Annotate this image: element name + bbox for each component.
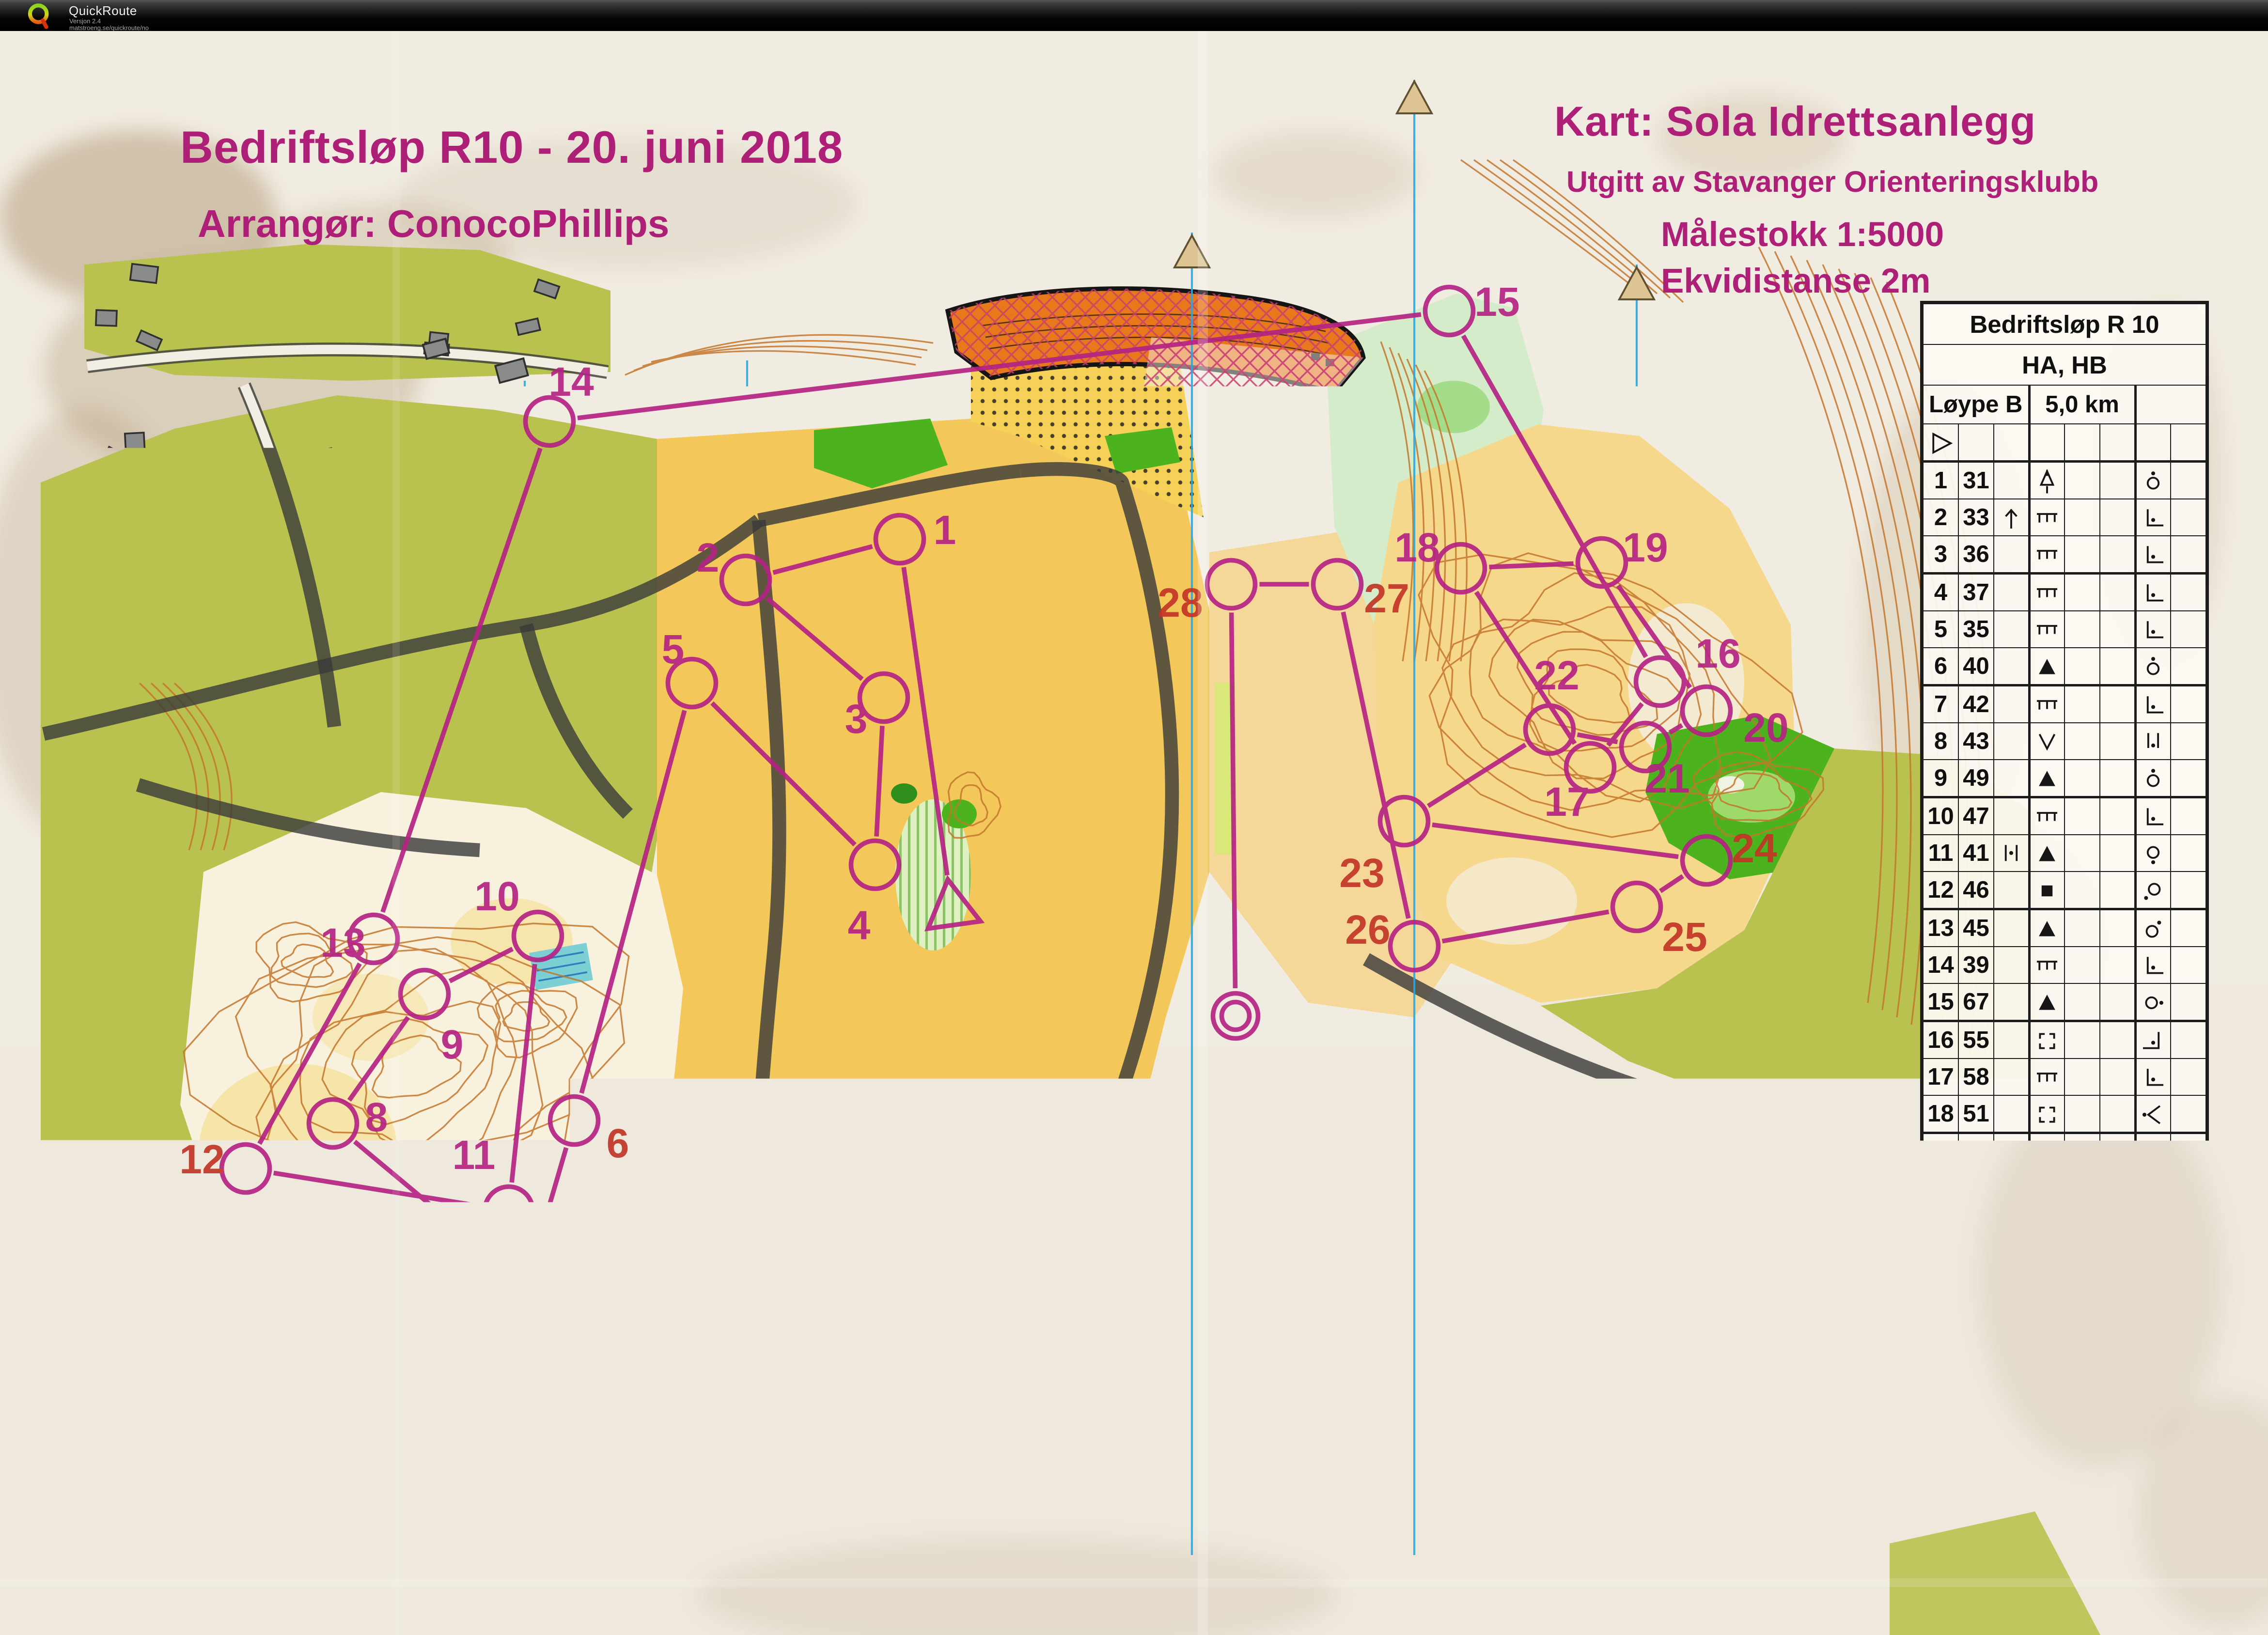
control-row-5: 535 [1923, 611, 2206, 648]
wall-icon [2034, 1437, 2060, 1464]
control-number-label: 7 [541, 1309, 564, 1355]
control-code: 43 [1958, 723, 1994, 760]
control-number: 24 [1923, 1319, 1958, 1357]
control-row-18: 1851 [1923, 1095, 2206, 1133]
corner-sw-dot-icon [2140, 1401, 2166, 1427]
event-title: Bedriftsløp R10 - 20. juni 2018 [180, 121, 843, 173]
control-description-card: Bedriftsløp R 10 HA, HB Løype B 5,0 km 1… [1920, 301, 2209, 1551]
control-row-4: 437 [1923, 574, 2206, 611]
control-row-7: 742 [1923, 685, 2206, 723]
boulder-icon [2034, 841, 2060, 867]
control-code: 56 [1958, 1170, 1994, 1207]
control-row-27: 2763 [1923, 1431, 2206, 1469]
ruin-icon [2034, 1177, 2060, 1203]
control-code: 63 [1958, 1431, 1994, 1469]
circle-dot-top-icon [2140, 654, 2166, 680]
fence-icon [2034, 617, 2060, 643]
control-code: 57 [1958, 1207, 1994, 1245]
control-code: 45 [1958, 909, 1994, 947]
circle-dot-top-icon [2140, 468, 2166, 495]
control-number-label: 27 [1364, 576, 1409, 621]
control-number: 9 [1923, 760, 1958, 797]
circle-dot-bottom-icon [2140, 841, 2166, 867]
control-code: 42 [1958, 685, 1994, 723]
ruin-icon [2034, 1102, 2060, 1128]
control-code: 58 [1958, 1059, 1994, 1095]
control-row-28: 2869 [1923, 1469, 2206, 1507]
control-number-label: 13 [320, 920, 365, 965]
control-number-label: 21 [1644, 756, 1689, 801]
card-title: Bedriftsløp R 10 [1923, 304, 2206, 344]
fence-icon [2034, 542, 2060, 568]
corner-nw-dot-icon [2140, 1214, 2166, 1240]
fence-icon [2034, 804, 2060, 830]
control-number-label: 16 [1695, 631, 1740, 676]
circle-dot-top-icon [2140, 766, 2166, 792]
last-leg-taped-icon [1930, 1515, 1956, 1541]
control-number-label: 18 [1394, 525, 1439, 570]
control-number: 4 [1923, 574, 1958, 611]
ruin-icon [2034, 1214, 2060, 1240]
app-version: Versjon 2.4 [69, 17, 101, 25]
control-number-label: 3 [845, 696, 868, 742]
control-number: 10 [1923, 797, 1958, 835]
app-title: QuickRoute [69, 3, 137, 18]
control-code: 33 [1958, 499, 1994, 536]
control-row-3: 336 [1923, 536, 2206, 574]
card-course-length: 5,0 km [2029, 385, 2135, 424]
control-code: 51 [1958, 1095, 1994, 1133]
map-contour-label: Ekvidistanse 2m [1661, 262, 1930, 301]
control-number-label: 15 [1474, 279, 1519, 325]
control-row-11: 1141 [1923, 835, 2206, 872]
control-code: 49 [1958, 760, 1994, 797]
fence-icon [2034, 1401, 2060, 1427]
control-code: 40 [1958, 648, 1994, 685]
control-number-label: 5 [662, 626, 685, 672]
control-row-15: 1567 [1923, 983, 2206, 1021]
control-number-label: 24 [1732, 825, 1777, 871]
corner-sw-dot-icon [2140, 953, 2166, 979]
boulder-icon [2034, 1364, 2060, 1390]
circle-dot-top-icon [2140, 1140, 2166, 1166]
control-code: 62 [1958, 1282, 1994, 1319]
control-row-14: 1439 [1923, 947, 2206, 983]
boulder-icon [2034, 1325, 2060, 1352]
finish-circles-icon [2173, 1515, 2199, 1541]
control-row-1: 131 [1923, 462, 2206, 499]
control-code: 41 [1958, 835, 1994, 872]
control-number: 11 [1923, 835, 1958, 872]
control-description-table: Bedriftsløp R 10 HA, HB Løype B 5,0 km 1… [1923, 303, 2206, 1548]
finish-distance: 210 m [1956, 1513, 2173, 1541]
control-code: 46 [1958, 872, 1994, 909]
control-number: 1 [1923, 462, 1958, 499]
fence-icon [2034, 953, 2060, 979]
corner-sw-dot-icon [2140, 1065, 2166, 1091]
control-number-label: 19 [1623, 525, 1668, 570]
control-number: 16 [1923, 1021, 1958, 1059]
circle-dot-topright-icon [2140, 916, 2166, 942]
control-row-13: 1345 [1923, 909, 2206, 947]
control-number-label: 20 [1743, 705, 1788, 750]
control-number: 12 [1923, 872, 1958, 909]
boulder-icon [2034, 654, 2060, 680]
corner-sw-dot-icon [2140, 617, 2166, 643]
control-code: 54 [1958, 1245, 1994, 1283]
fence-icon [2034, 580, 2060, 607]
control-code: 35 [1958, 611, 1994, 648]
titlebar: QuickRoute Versjon 2.4 matstroeng.se/qui… [0, 0, 2268, 31]
card-course-extra [2135, 385, 2206, 424]
circle-dot-bottomleft-icon [2140, 878, 2166, 904]
control-row-12: 1246 [1923, 872, 2206, 909]
fence-icon [2034, 1065, 2060, 1091]
control-row-2: 233 [1923, 499, 2206, 536]
card-classes: HA, HB [1923, 344, 2206, 385]
control-number: 14 [1923, 947, 1958, 983]
control-number: 8 [1923, 723, 1958, 760]
control-code: 31 [1958, 462, 1994, 499]
boulder-icon [2034, 990, 2060, 1016]
vee-right-dot-icon [2140, 1102, 2166, 1128]
building-icon [2034, 878, 2060, 904]
circle-dot-topright-icon [2140, 1325, 2166, 1352]
control-number-label: 23 [1339, 850, 1384, 896]
control-row-9: 949 [1923, 760, 2206, 797]
corner-sw-dot-icon [2140, 542, 2166, 568]
boulder-icon [2034, 1140, 2060, 1166]
control-number-label: 25 [1662, 914, 1707, 960]
boulder-icon [2034, 766, 2060, 792]
circle-dot-right-icon [2140, 990, 2166, 1016]
control-number-label: 2 [697, 535, 720, 580]
between-bars-dot-icon [2140, 729, 2166, 755]
control-number: 13 [1923, 909, 1958, 947]
corner-sw-dot-icon [2140, 804, 2166, 830]
taped-route-icon [1930, 1513, 1956, 1541]
tree-icon [2034, 468, 2060, 495]
fence-icon [2034, 692, 2060, 718]
fence-icon [2034, 505, 2060, 531]
control-row-6: 640 [1923, 648, 2206, 685]
control-row-10: 1047 [1923, 797, 2206, 835]
control-number-label: 10 [474, 873, 519, 919]
control-number: 6 [1923, 648, 1958, 685]
control-row-8: 843 [1923, 723, 2206, 760]
event-organizer: Arrangør: ConocoPhillips [198, 202, 669, 246]
app-url: matstroeng.se/quickroute/no [69, 24, 149, 31]
control-row-17: 1758 [1923, 1059, 2206, 1095]
control-number-label: 17 [1544, 779, 1589, 825]
card-start-row [1923, 424, 2206, 462]
control-number: 25 [1923, 1357, 1958, 1395]
corner-ne-dot-icon [2140, 1177, 2166, 1203]
control-number-label: 11 [453, 1132, 496, 1178]
between-boulders-icon [1998, 841, 2024, 867]
control-row-19: 1952 [1923, 1133, 2206, 1171]
control-row-25: 2560 [1923, 1357, 2206, 1395]
control-number-label: 26 [1345, 907, 1390, 952]
control-code: 37 [1958, 574, 1994, 611]
control-number: 2 [1923, 499, 1958, 536]
map-scale-label: Målestokk 1:5000 [1661, 215, 1944, 254]
map-name-label: Kart: Sola Idrettsanlegg [1554, 98, 2036, 146]
control-code: 36 [1958, 536, 1994, 574]
control-number: 27 [1923, 1431, 1958, 1469]
cross-icon [2034, 1476, 2060, 1502]
circle-dot-left-icon [2140, 1476, 2166, 1502]
corner-se-dot-icon [2140, 1028, 2166, 1054]
finish-icon [2173, 1513, 2199, 1541]
control-number: 21 [1923, 1207, 1958, 1245]
quickroute-logo-icon [25, 2, 53, 30]
control-number-label: 14 [548, 359, 594, 405]
control-row-20: 2056 [1923, 1170, 2206, 1207]
control-row-21: 2157 [1923, 1207, 2206, 1245]
control-row-16: 1655 [1923, 1021, 2206, 1059]
circle-dot-topright-icon [2140, 1252, 2166, 1278]
boulder-icon [2034, 916, 2060, 942]
control-number: 15 [1923, 983, 1958, 1021]
control-code: 55 [1958, 1021, 1994, 1059]
control-number: 28 [1923, 1469, 1958, 1507]
control-code: 47 [1958, 797, 1994, 835]
corner-ne-dot-icon [2140, 1437, 2166, 1464]
circle-dot-bottom-icon [2140, 1364, 2166, 1390]
control-number-label: 8 [365, 1094, 388, 1140]
control-row-22: 2254 [1923, 1245, 2206, 1283]
corner-sw-dot-icon [2140, 692, 2166, 718]
control-number: 20 [1923, 1170, 1958, 1207]
card-course-name: Løype B [1923, 385, 2029, 424]
control-number-label: 4 [848, 903, 871, 948]
control-number: 17 [1923, 1059, 1958, 1095]
map-publisher-label: Utgitt av Stavanger Orienteringsklubb [1566, 165, 2098, 199]
control-code: 59 [1958, 1319, 1994, 1357]
control-number: 18 [1923, 1095, 1958, 1133]
corner-sw-dot-icon [2140, 505, 2166, 531]
corner-sw-dot-icon [2140, 580, 2166, 607]
boulder-icon [2034, 1252, 2060, 1278]
arrow-up-icon [1998, 505, 2024, 531]
control-number: 19 [1923, 1133, 1958, 1171]
control-number: 26 [1923, 1394, 1958, 1431]
screenshot-root: 1234567891011121314151617181920212223242… [0, 0, 2268, 1635]
control-number-label: 9 [441, 1022, 464, 1067]
control-code: 52 [1958, 1133, 1994, 1171]
start-triangle-icon [1928, 430, 1954, 456]
roundabout [1342, 1254, 1385, 1298]
control-number: 3 [1923, 536, 1958, 574]
control-code: 67 [1958, 983, 1994, 1021]
control-number-label: 12 [179, 1137, 224, 1182]
control-number: 22 [1923, 1245, 1958, 1283]
control-number-label: 22 [1534, 653, 1579, 698]
control-code: 61 [1958, 1394, 1994, 1431]
control-number-label: 28 [1157, 580, 1203, 625]
vee-icon [2034, 729, 2060, 755]
boulder-icon [2034, 1289, 2060, 1315]
control-code: 60 [1958, 1357, 1994, 1395]
control-row-26: 2661 [1923, 1394, 2206, 1431]
circle-dot-right-icon [2140, 1289, 2166, 1315]
control-number-label: 1 [934, 507, 956, 553]
control-number: 23 [1923, 1282, 1958, 1319]
control-number-label: 6 [607, 1121, 629, 1166]
ruin-icon [2034, 1028, 2060, 1054]
control-code: 69 [1958, 1469, 1994, 1507]
card-finish-row: 210 m [1923, 1506, 2206, 1548]
control-number: 5 [1923, 611, 1958, 648]
control-row-24: 2459 [1923, 1319, 2206, 1357]
control-code: 39 [1958, 947, 1994, 983]
control-row-23: 2362 [1923, 1282, 2206, 1319]
control-number: 7 [1923, 685, 1958, 723]
